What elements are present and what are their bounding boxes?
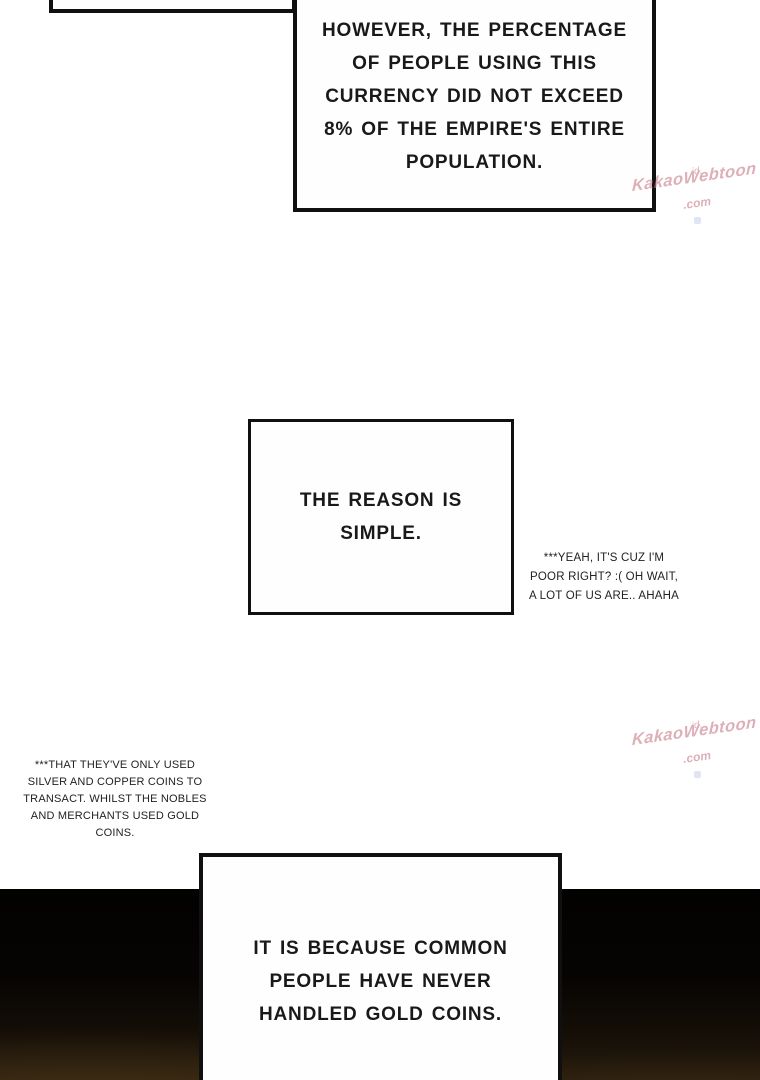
watermark-suffix: .com bbox=[632, 741, 760, 773]
text-line: PEOPLE HAVE NEVER bbox=[203, 965, 558, 998]
narration-box-top: HOWEVER, THE PERCENTAGE OF PEOPLE USING … bbox=[293, 0, 656, 212]
text-line: THE REASON IS bbox=[251, 484, 511, 517]
note-line: POOR RIGHT? :( OH WAIT, bbox=[525, 568, 683, 587]
text-line: HANDLED GOLD COINS. bbox=[203, 998, 558, 1031]
text-line: HOWEVER, THE PERCENTAGE bbox=[297, 14, 652, 47]
text-line: POPULATION. bbox=[297, 146, 652, 179]
watermark-dot bbox=[694, 217, 701, 224]
translator-note-left: ***THAT THEY'VE ONLY USED SILVER AND COP… bbox=[18, 757, 212, 842]
narration-box-bottom: IT IS BECAUSE COMMON PEOPLE HAVE NEVER H… bbox=[199, 853, 562, 1080]
webtoon-page: HOWEVER, THE PERCENTAGE OF PEOPLE USING … bbox=[0, 0, 760, 1080]
narration-box-middle: THE REASON IS SIMPLE. bbox=[248, 419, 514, 615]
watermark-prefix: id. bbox=[632, 711, 760, 740]
note-line: COINS. bbox=[18, 825, 212, 842]
text-line: SIMPLE. bbox=[251, 517, 511, 550]
note-line: ***THAT THEY'VE ONLY USED bbox=[18, 757, 212, 774]
watermark-dot bbox=[694, 771, 701, 778]
note-line: SILVER AND COPPER COINS TO bbox=[18, 774, 212, 791]
kakaowebtoon-watermark: id. KakaoWebtoon .com bbox=[632, 720, 760, 778]
watermark-name: KakaoWebtoon bbox=[632, 713, 760, 750]
cutoff-panel-corner bbox=[49, 0, 296, 13]
text-line: OF PEOPLE USING THIS bbox=[297, 47, 652, 80]
text-line: CURRENCY DID NOT EXCEED bbox=[297, 80, 652, 113]
note-line: A LOT OF US ARE.. AHAHA bbox=[525, 587, 683, 606]
text-line: 8% OF THE EMPIRE'S ENTIRE bbox=[297, 113, 652, 146]
text-line: IT IS BECAUSE COMMON bbox=[203, 932, 558, 965]
note-line: TRANSACT. WHILST THE NOBLES bbox=[18, 791, 212, 808]
note-line: ***YEAH, IT'S CUZ I'M bbox=[525, 549, 683, 568]
note-line: AND MERCHANTS USED GOLD bbox=[18, 808, 212, 825]
translator-note-right: ***YEAH, IT'S CUZ I'M POOR RIGHT? :( OH … bbox=[525, 549, 683, 606]
